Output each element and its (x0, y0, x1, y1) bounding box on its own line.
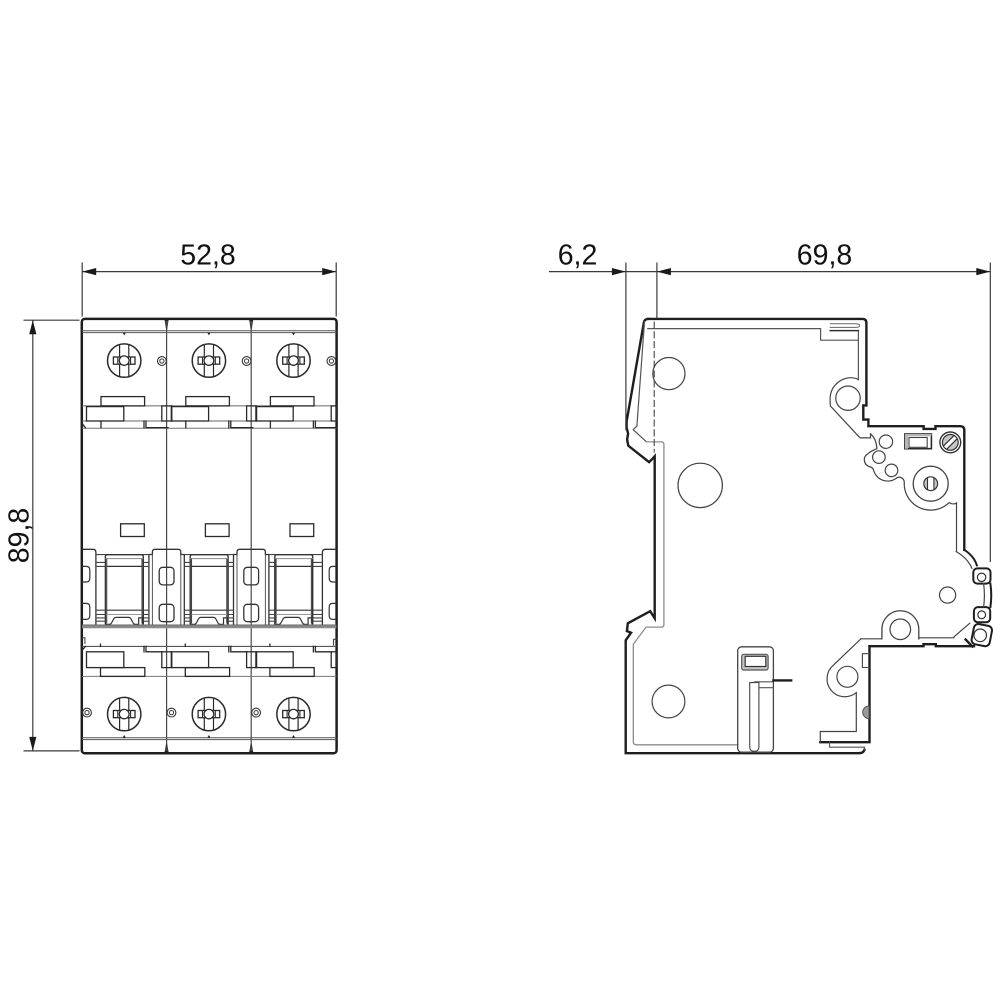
svg-text:69,8: 69,8 (797, 240, 852, 272)
svg-text:89,8: 89,8 (4, 508, 36, 563)
svg-text:6,2: 6,2 (558, 240, 598, 272)
svg-text:52,8: 52,8 (180, 240, 235, 272)
